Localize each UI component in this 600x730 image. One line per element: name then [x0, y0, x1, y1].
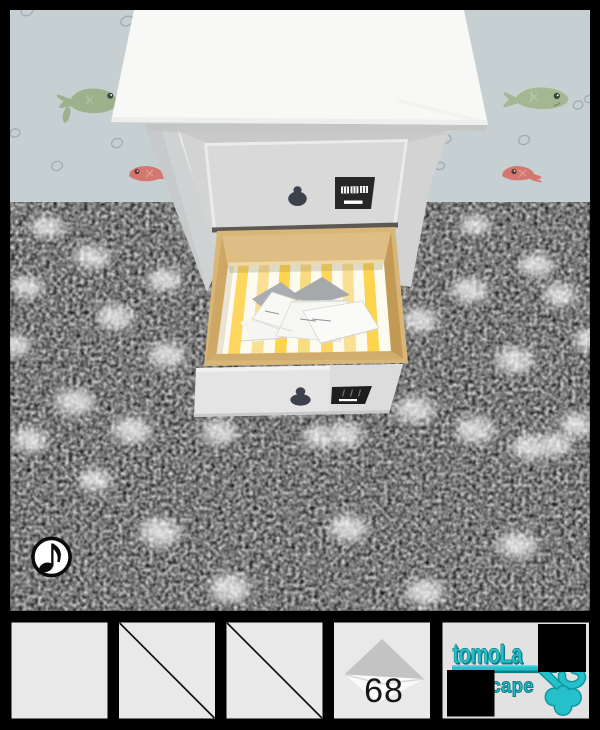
- svg-text:68: 68: [364, 672, 404, 710]
